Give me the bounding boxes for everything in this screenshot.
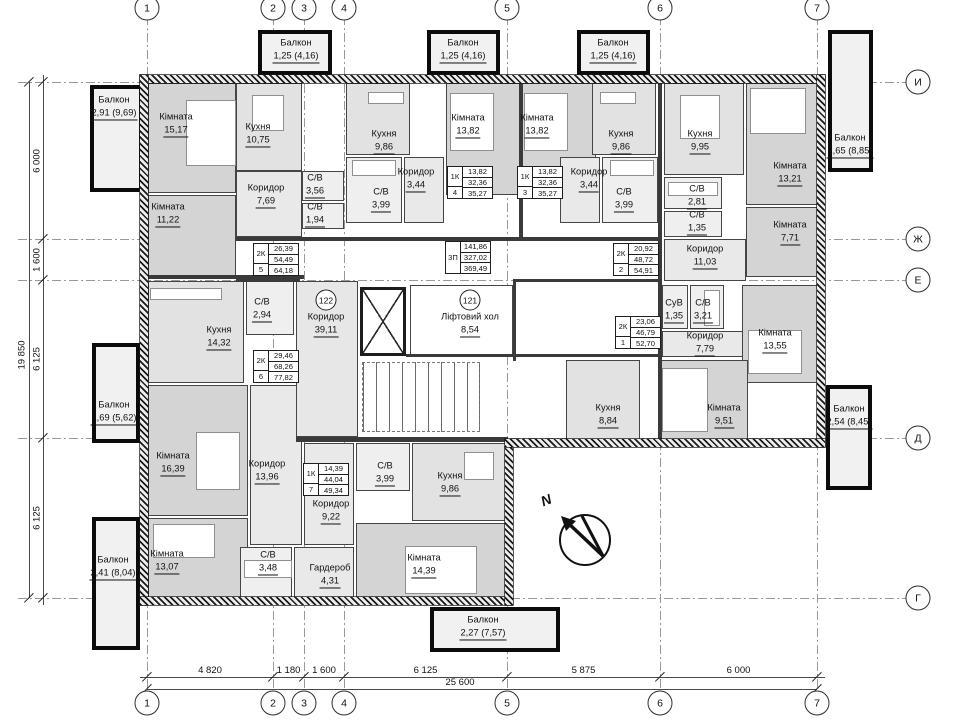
exterior-wall (505, 447, 513, 605)
room-area: 3,99 (375, 473, 395, 487)
furniture-counter (150, 288, 222, 300)
apartment-number: 6 (254, 370, 268, 382)
dimension-line (140, 677, 825, 678)
balcony (826, 385, 872, 490)
room-label: Кімната11,22 (151, 200, 184, 227)
room-name: Кухня (596, 401, 621, 414)
room-name: Коридор (249, 457, 286, 470)
room-name: Коридор (687, 329, 724, 342)
room-name: Коридор (248, 181, 285, 194)
room-name: Кухня (688, 127, 713, 140)
room-area: 10,75 (245, 134, 270, 148)
room-label: Коридор9,22 (313, 497, 350, 524)
balcony-name: Балкон (273, 36, 320, 49)
room-area: 11,22 (156, 214, 181, 228)
dimension-label: 6 000 (32, 149, 43, 173)
room-name: С/В (305, 200, 325, 213)
apartment-info-table: 2К526,3954,4964,18 (253, 243, 299, 276)
room-label: Гардероб4,31 (310, 561, 351, 588)
room-label: Кімната13,55 (758, 326, 791, 353)
furniture-tub (352, 160, 396, 176)
room-area: 39,11 (314, 324, 339, 338)
room-area: 13,82 (524, 125, 549, 139)
apartment-type: 2К (254, 244, 268, 263)
apartment-areas: 13,8232,3635,27 (533, 167, 562, 198)
apartment-area-value: 369,49 (461, 263, 490, 273)
interior-wall (513, 281, 516, 361)
room-name: Кухня (609, 127, 634, 140)
apartment-areas: 23,0646,7952,70 (631, 317, 660, 348)
room-name: Коридор (313, 497, 350, 510)
room-name: СуВ (664, 296, 684, 309)
room-area: 9,86 (611, 141, 631, 155)
room-label: С/В2,81 (687, 182, 707, 209)
exterior-wall (505, 439, 825, 447)
balcony (92, 517, 140, 650)
room-area: 8,54 (460, 324, 480, 338)
apartment-info-table: 2К123,0646,7952,70 (615, 316, 661, 349)
furniture-counter (600, 92, 636, 104)
room-name: Гардероб (310, 561, 351, 574)
room-area: 1,94 (305, 214, 325, 228)
apartment-areas: 20,9248,7254,91 (629, 244, 658, 275)
north-arrow-icon (557, 512, 613, 568)
room-name: Кімната (707, 401, 740, 414)
balcony-label: Балкон1,25 (4,16) (590, 36, 637, 63)
room-label: С/В1,35 (687, 208, 707, 235)
room-area: 8,84 (598, 415, 618, 429)
room-label: С/В3,21 (693, 296, 713, 323)
apartment-info-table: 2К220,9248,7254,91 (613, 243, 659, 276)
interior-wall (513, 279, 662, 282)
room-area: 13,07 (154, 561, 179, 575)
balcony-name: Балкон (827, 131, 874, 144)
axis-marker: 3 (292, 0, 317, 21)
room-label: Кухня9,86 (372, 127, 397, 154)
dimension-label: 6 000 (727, 665, 751, 676)
room-label: Кімната13,21 (773, 159, 806, 186)
room-label: Кімната7,71 (773, 218, 806, 245)
apartment-area-value: 54,91 (629, 265, 658, 275)
apartment-areas: 29,4668,2677,82 (269, 351, 298, 382)
room-name: Кімната (451, 111, 484, 124)
room-area: 13,21 (777, 173, 802, 187)
apartment-info-table: 3П141,86327,02369,49 (445, 241, 491, 274)
room-name: Кімната (773, 218, 806, 231)
room-label: Кухня14,32 (206, 323, 231, 350)
room-number-badge: 122 (316, 290, 337, 311)
room-name: С/В (614, 185, 634, 198)
room-name: Кімната (159, 110, 192, 123)
compass: N (557, 512, 613, 573)
apartment-type: 1К (518, 167, 532, 186)
apartment-info-table: 1К714,3944,0449,34 (303, 463, 349, 496)
room-label: Коридор3,44 (398, 165, 435, 192)
furniture-tub (610, 160, 654, 176)
dimension-label: 4 820 (198, 665, 222, 676)
apartment-area-value: 44,04 (319, 475, 348, 486)
furniture-bed (186, 100, 236, 166)
room-label: С/В3,99 (375, 459, 395, 486)
room-label: СуВ1,35 (664, 296, 684, 323)
interior-wall (296, 437, 508, 442)
dimension-label: 1 600 (312, 665, 336, 676)
room-label: Кухня8,84 (596, 401, 621, 428)
room-name: С/В (693, 296, 713, 309)
room-label: Коридор7,79 (687, 329, 724, 356)
room-area: 15,17 (163, 124, 188, 138)
dimension-total-label: 25 600 (445, 677, 474, 688)
room-name: С/В (687, 182, 707, 195)
room-area: 9,22 (321, 511, 341, 525)
axis-marker: 5 (495, 0, 520, 21)
axis-marker: И (906, 70, 931, 95)
exterior-wall (140, 75, 148, 605)
balcony-label: Балкон1,69 (5,62) (91, 398, 138, 425)
apartment-areas: 13,8232,3635,27 (463, 167, 492, 198)
balcony-name: Балкон (91, 398, 138, 411)
room-label: С/В3,56 (305, 171, 325, 198)
room-area: 9,86 (374, 141, 394, 155)
apartment-area-value: 64,18 (269, 265, 298, 275)
balcony-area: 2,41 (8,04) (90, 567, 137, 581)
apartment-area-value: 77,82 (269, 372, 298, 382)
room-label: Коридор3,44 (571, 165, 608, 192)
room-area: 2,81 (687, 196, 707, 210)
room-area: 1,35 (664, 310, 684, 324)
apartment-type-cell: 2К2 (614, 244, 629, 275)
room-label: Кухня9,86 (438, 469, 463, 496)
balcony-area: 1,25 (4,16) (590, 50, 637, 64)
room-area: 7,71 (780, 232, 800, 246)
balcony-label: Балкон2,27 (7,57) (460, 613, 507, 640)
axis-marker: 6 (648, 691, 673, 716)
furniture-table (464, 452, 494, 480)
room-label: Кімната13,82 (520, 111, 553, 138)
balcony-name: Балкон (590, 36, 637, 49)
room-area: 7,69 (256, 195, 276, 209)
balcony-label: Балкон2,91 (9,69) (91, 93, 138, 120)
apartment-type: 1К (448, 167, 462, 186)
apartment-type: 2К (254, 351, 268, 370)
axis-marker: 1 (135, 691, 160, 716)
dimension-line (29, 82, 30, 598)
balcony-name: Балкон (460, 613, 507, 626)
dimension-label: 6 125 (414, 665, 438, 676)
room-label: Коридор13,96 (249, 457, 286, 484)
room-area: 9,51 (714, 415, 734, 429)
room-area: 1,35 (687, 222, 707, 236)
apartment-areas: 141,86327,02369,49 (461, 242, 490, 273)
room-area: 14,39 (411, 565, 436, 579)
room-area: 14,32 (206, 337, 231, 351)
balcony-area: 1,25 (4,16) (440, 50, 487, 64)
room-area: 3,56 (305, 185, 325, 199)
room-name: Ліфтовий хол (441, 310, 499, 323)
room-label: Кімната9,51 (707, 401, 740, 428)
room-label: Кімната16,39 (156, 449, 189, 476)
apartment-number: 5 (254, 263, 268, 275)
furniture-bed (662, 368, 708, 432)
axis-marker: 4 (332, 691, 357, 716)
room-label: Кімната13,07 (150, 547, 183, 574)
room-name: С/В (252, 295, 272, 308)
furniture-counter (368, 92, 404, 104)
apartment-area-value: 52,70 (631, 338, 660, 348)
room-name: Коридор (398, 165, 435, 178)
room-area: 4,31 (320, 575, 340, 589)
room-label: С/В3,99 (371, 185, 391, 212)
apartment-area-value: 23,06 (631, 317, 660, 328)
elevator-shaft (360, 287, 406, 356)
apartment-info-table: 1К313,8232,3635,27 (517, 166, 563, 199)
axis-marker: 2 (261, 691, 286, 716)
room-name: Кімната (758, 326, 791, 339)
balcony-name: Балкон (440, 36, 487, 49)
room-area: 13,82 (455, 125, 480, 139)
room-area: 16,39 (160, 463, 185, 477)
apartment-type-cell: 2К1 (616, 317, 631, 348)
apartment-type-cell: 2К5 (254, 244, 269, 275)
room-area: 7,79 (695, 343, 715, 357)
apartment-area-value: 29,46 (269, 351, 298, 362)
apartment-type-cell: 2К6 (254, 351, 269, 382)
staircase (362, 362, 480, 432)
balcony-area: 2,91 (9,69) (91, 107, 138, 121)
room-name: Кухня (438, 469, 463, 482)
room-area: 3,99 (614, 199, 634, 213)
apartment-area-value: 68,26 (269, 362, 298, 373)
room-area: 3,48 (258, 562, 278, 576)
apartment-area-value: 141,86 (461, 242, 490, 253)
room-area: 13,55 (762, 340, 787, 354)
balcony-area: 2,54 (8,45) (826, 416, 873, 430)
apartment-info-table: 1К413,8232,3635,27 (447, 166, 493, 199)
apartment-area-value: 54,49 (269, 255, 298, 266)
dimension-line (43, 75, 44, 605)
dimension-line (147, 689, 817, 690)
room-area: 11,03 (693, 256, 718, 270)
room-area: 2,94 (252, 309, 272, 323)
room-name: Кімната (773, 159, 806, 172)
axis-marker: 7 (805, 691, 830, 716)
apartment-type: 2К (616, 317, 630, 336)
room-name: Кухня (206, 323, 231, 336)
plan-canvas: N 11223344556677ИЖЕДГ4 8201 1801 6006 12… (0, 0, 960, 720)
axis-marker: 5 (495, 691, 520, 716)
room-name: Кімната (156, 449, 189, 462)
room-name: С/В (305, 171, 325, 184)
apartment-type: 3П (446, 242, 460, 273)
room-name: Кухня (245, 120, 270, 133)
room-label: С/В2,94 (252, 295, 272, 322)
room-label: Кухня10,75 (245, 120, 270, 147)
room-name: Кімната (150, 547, 183, 560)
dimension-label: 1 180 (277, 665, 301, 676)
apartment-area-value: 46,79 (631, 328, 660, 339)
apartment-type-cell: 3П (446, 242, 461, 273)
interior-wall (406, 354, 662, 357)
room-label: Кімната14,39 (407, 551, 440, 578)
axis-marker: 3 (292, 691, 317, 716)
dimension-label: 6 125 (32, 506, 43, 530)
room-name: Коридор (308, 310, 345, 323)
balcony-label: Балкон2,65 (8,85) (827, 131, 874, 158)
apartment-area-value: 32,36 (533, 178, 562, 189)
room-label: Кухня9,86 (609, 127, 634, 154)
room-area: 3,44 (579, 179, 599, 193)
north-label: N (538, 491, 553, 510)
apartment-area-value: 327,02 (461, 253, 490, 264)
apartment-type-cell: 1К3 (518, 167, 533, 198)
apartment-area-value: 13,82 (533, 167, 562, 178)
apartment-type-cell: 1К7 (304, 464, 319, 495)
furniture-bed (750, 88, 806, 134)
room-name: Кімната (407, 551, 440, 564)
room-label: С/В3,48 (258, 548, 278, 575)
balcony-area: 2,65 (8,85) (827, 145, 874, 159)
axis-marker: Д (906, 426, 931, 451)
axis-marker: 7 (805, 0, 830, 21)
apartment-number: 3 (518, 186, 532, 198)
interior-wall (236, 279, 300, 282)
furniture-bed (196, 432, 240, 490)
balcony-name: Балкон (90, 553, 137, 566)
balcony-name: Балкон (826, 402, 873, 415)
balcony (92, 343, 140, 443)
axis-marker: Ж (906, 227, 931, 252)
apartment-area-value: 26,39 (269, 244, 298, 255)
axis-marker: Г (906, 586, 931, 611)
balcony-label: Балкон2,54 (8,45) (826, 402, 873, 429)
axis-marker: 1 (135, 0, 160, 21)
room-area: 9,86 (440, 483, 460, 497)
axis-marker: 2 (261, 0, 286, 21)
axis-marker: 4 (332, 0, 357, 21)
apartment-number: 4 (448, 186, 462, 198)
dimension-total-label: 19 850 (17, 340, 28, 369)
apartment-info-table: 2К629,4668,2677,82 (253, 350, 299, 383)
exterior-wall (140, 597, 512, 605)
room-area: 9,95 (690, 141, 710, 155)
room-name: С/В (687, 208, 707, 221)
dimension-label: 1 600 (32, 248, 43, 272)
dimension-label: 6 125 (32, 347, 43, 371)
apartment-type: 2К (614, 244, 628, 263)
exterior-wall (817, 75, 825, 447)
balcony-label: Балкон1,25 (4,16) (440, 36, 487, 63)
apartment-type-cell: 1К4 (448, 167, 463, 198)
apartment-area-value: 35,27 (533, 188, 562, 198)
room-label: Коридор7,69 (248, 181, 285, 208)
room-name: Кухня (372, 127, 397, 140)
balcony-area: 2,27 (7,57) (460, 627, 507, 641)
apartment-areas: 14,3944,0449,34 (319, 464, 348, 495)
room-name: Коридор (687, 242, 724, 255)
room-label: С/В3,99 (614, 185, 634, 212)
room-area: 3,44 (406, 179, 426, 193)
room-label: Коридор11,03 (687, 242, 724, 269)
apartment-area-value: 48,72 (629, 255, 658, 266)
apartment-area-value: 35,27 (463, 188, 492, 198)
room-name: Кімната (520, 111, 553, 124)
room-name: Коридор (571, 165, 608, 178)
balcony-label: Балкон2,41 (8,04) (90, 553, 137, 580)
apartment-number: 2 (614, 263, 628, 275)
room-area: 13,96 (254, 471, 279, 485)
apartment-area-value: 13,82 (463, 167, 492, 178)
apartment-number: 7 (304, 483, 318, 495)
axis-marker: Е (906, 268, 931, 293)
room-name: С/В (375, 459, 395, 472)
room-area: 3,99 (371, 199, 391, 213)
apartment-areas: 26,3954,4964,18 (269, 244, 298, 275)
apartment-area-value: 49,34 (319, 485, 348, 495)
interior-wall (519, 83, 523, 237)
apartment-area-value: 32,36 (463, 178, 492, 189)
room-label: Ліфтовий хол8,54 (441, 310, 499, 337)
balcony-label: Балкон1,25 (4,16) (273, 36, 320, 63)
exterior-wall (140, 75, 825, 83)
room-area: 3,21 (693, 310, 713, 324)
balcony-name: Балкон (91, 93, 138, 106)
room-label: С/В1,94 (305, 200, 325, 227)
room-label: Кухня9,95 (688, 127, 713, 154)
room-number-badge: 121 (460, 290, 481, 311)
apartment-area-value: 14,39 (319, 464, 348, 475)
apartment-type: 1К (304, 464, 318, 483)
room-name: Кімната (151, 200, 184, 213)
room-label: Кімната15,17 (159, 110, 192, 137)
balcony-area: 1,69 (5,62) (91, 412, 138, 426)
room-name: С/В (371, 185, 391, 198)
balcony-area: 1,25 (4,16) (273, 50, 320, 64)
room-label: Кімната13,82 (451, 111, 484, 138)
room-label: Коридор39,11 (308, 310, 345, 337)
room-name: С/В (258, 548, 278, 561)
dimension-label: 5 875 (572, 665, 596, 676)
apartment-area-value: 20,92 (629, 244, 658, 255)
apartment-number: 1 (616, 336, 630, 348)
axis-marker: 6 (648, 0, 673, 21)
